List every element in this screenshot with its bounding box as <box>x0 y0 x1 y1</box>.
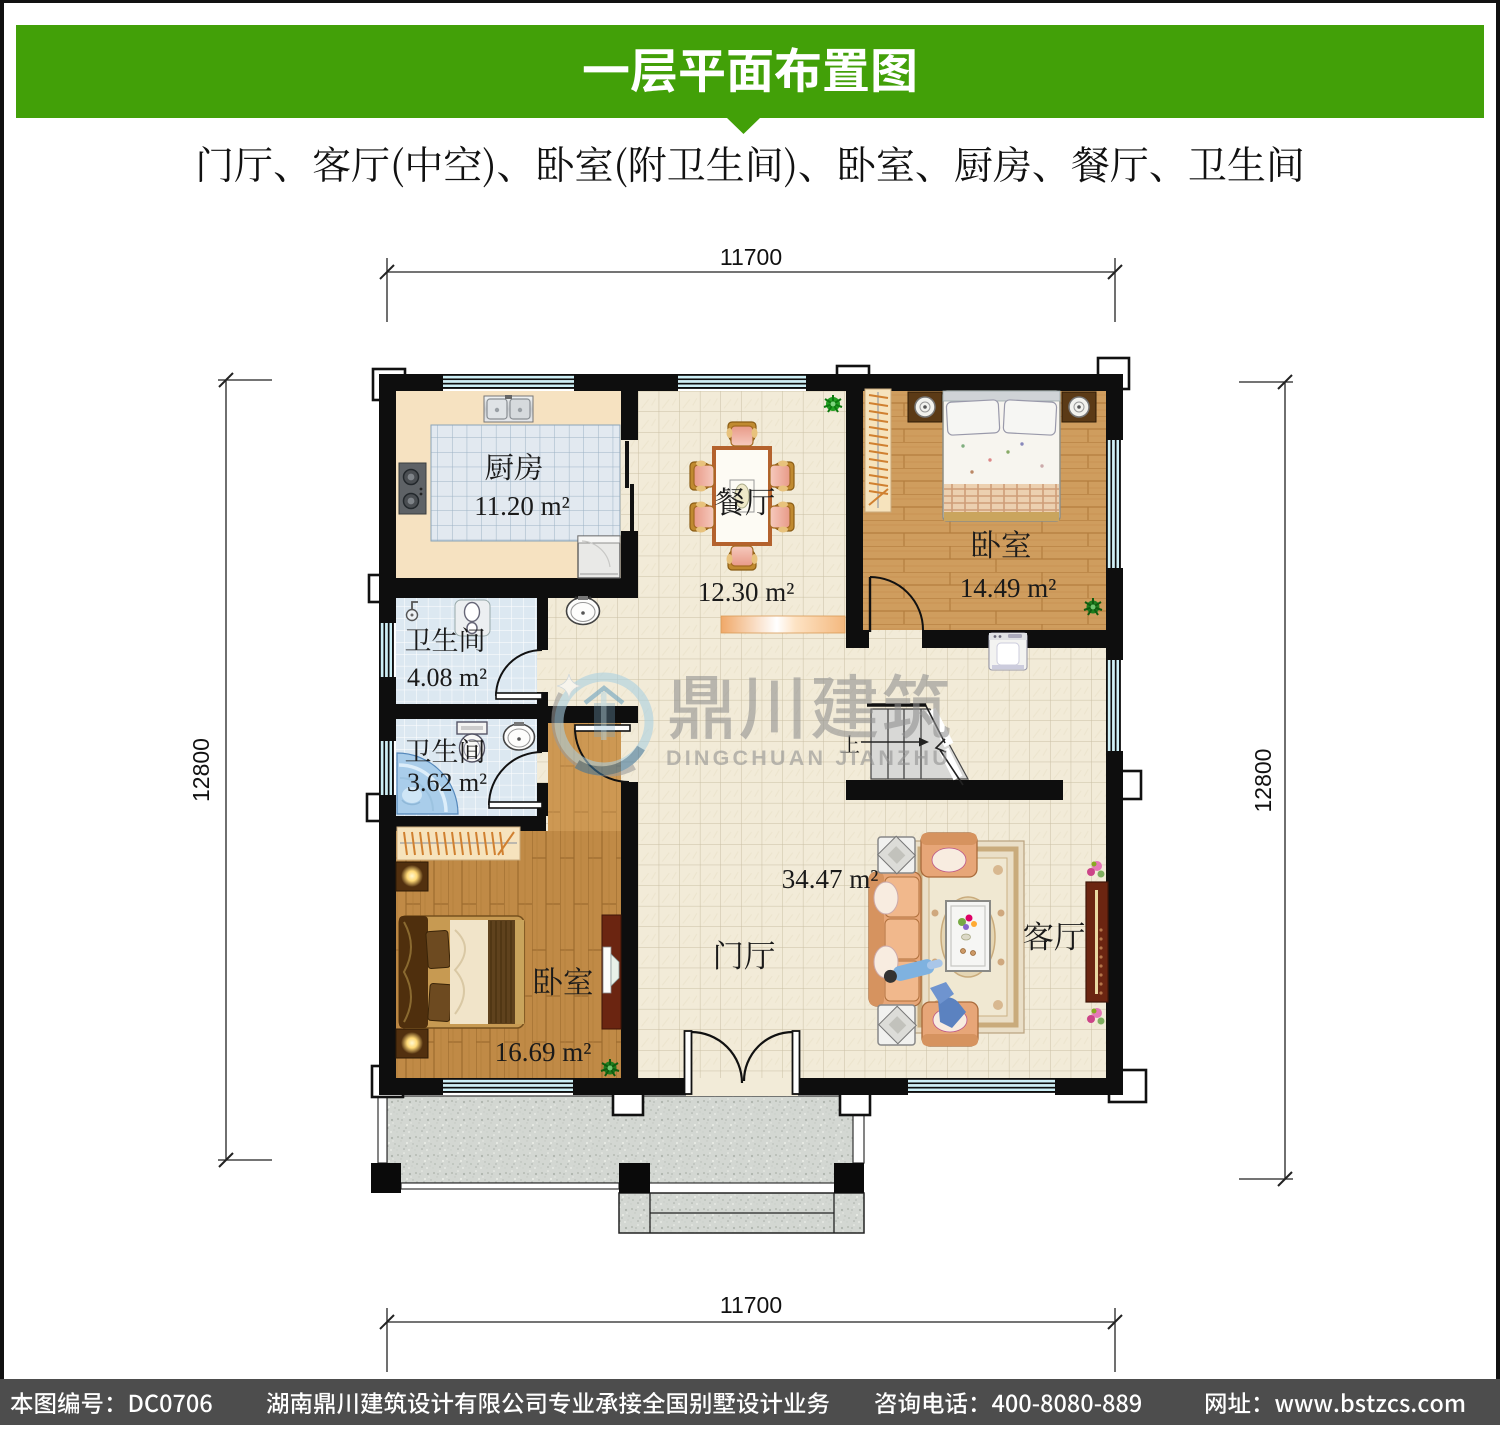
svg-text:DINGCHUAN JIANZHU: DINGCHUAN JIANZHU <box>666 746 951 770</box>
svg-text:12800: 12800 <box>1250 749 1276 813</box>
svg-text:12800: 12800 <box>188 738 214 802</box>
svg-text:12.30 m²: 12.30 m² <box>698 577 795 607</box>
svg-text:34.47 m²: 34.47 m² <box>782 864 879 894</box>
svg-text:11.20 m²: 11.20 m² <box>474 491 570 521</box>
svg-text:14.49 m²: 14.49 m² <box>960 573 1057 603</box>
svg-text:16.69 m²: 16.69 m² <box>495 1037 592 1067</box>
svg-text:4.08 m²: 4.08 m² <box>407 663 487 692</box>
svg-text:11700: 11700 <box>720 244 782 270</box>
svg-text:3.62 m²: 3.62 m² <box>407 768 487 797</box>
svg-text:11700: 11700 <box>720 1292 782 1318</box>
